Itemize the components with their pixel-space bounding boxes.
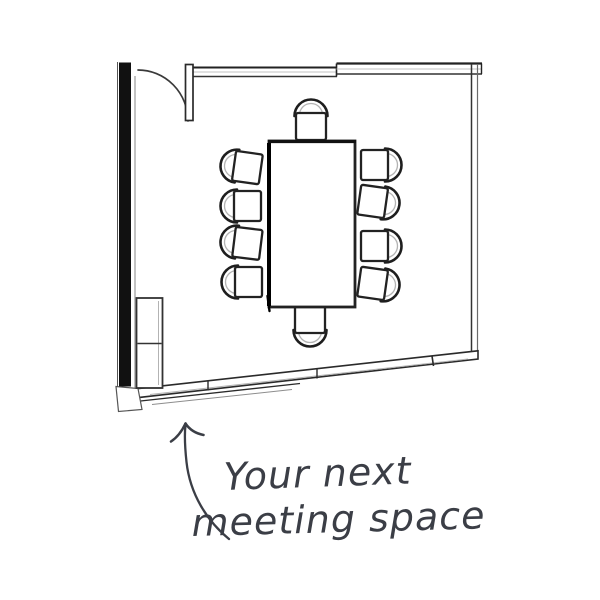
chair-right-1 [361,149,402,182]
chair-right-2 [357,183,402,221]
chair-left-4 [222,266,263,299]
door-swing-arc [138,70,188,121]
page-canvas: Your next meeting space [0,0,600,600]
chair-top [295,100,328,141]
bottom-wall [116,351,478,412]
chair-left-3 [219,224,263,262]
door [138,65,193,122]
top-wall [192,64,482,77]
right-wall [472,64,478,353]
annotation-line-2: meeting space [191,496,486,542]
annotation-line-1: Your next [223,451,412,496]
chair-left-2 [221,190,262,223]
door-leaf [186,65,194,121]
chair-bottom [294,306,327,347]
left-wall [118,62,136,391]
sideboard-cabinet [137,298,163,388]
chair-left-1 [218,148,263,186]
conference-table [268,141,357,311]
chair-right-3 [361,230,402,263]
chair-right-4 [357,265,402,303]
